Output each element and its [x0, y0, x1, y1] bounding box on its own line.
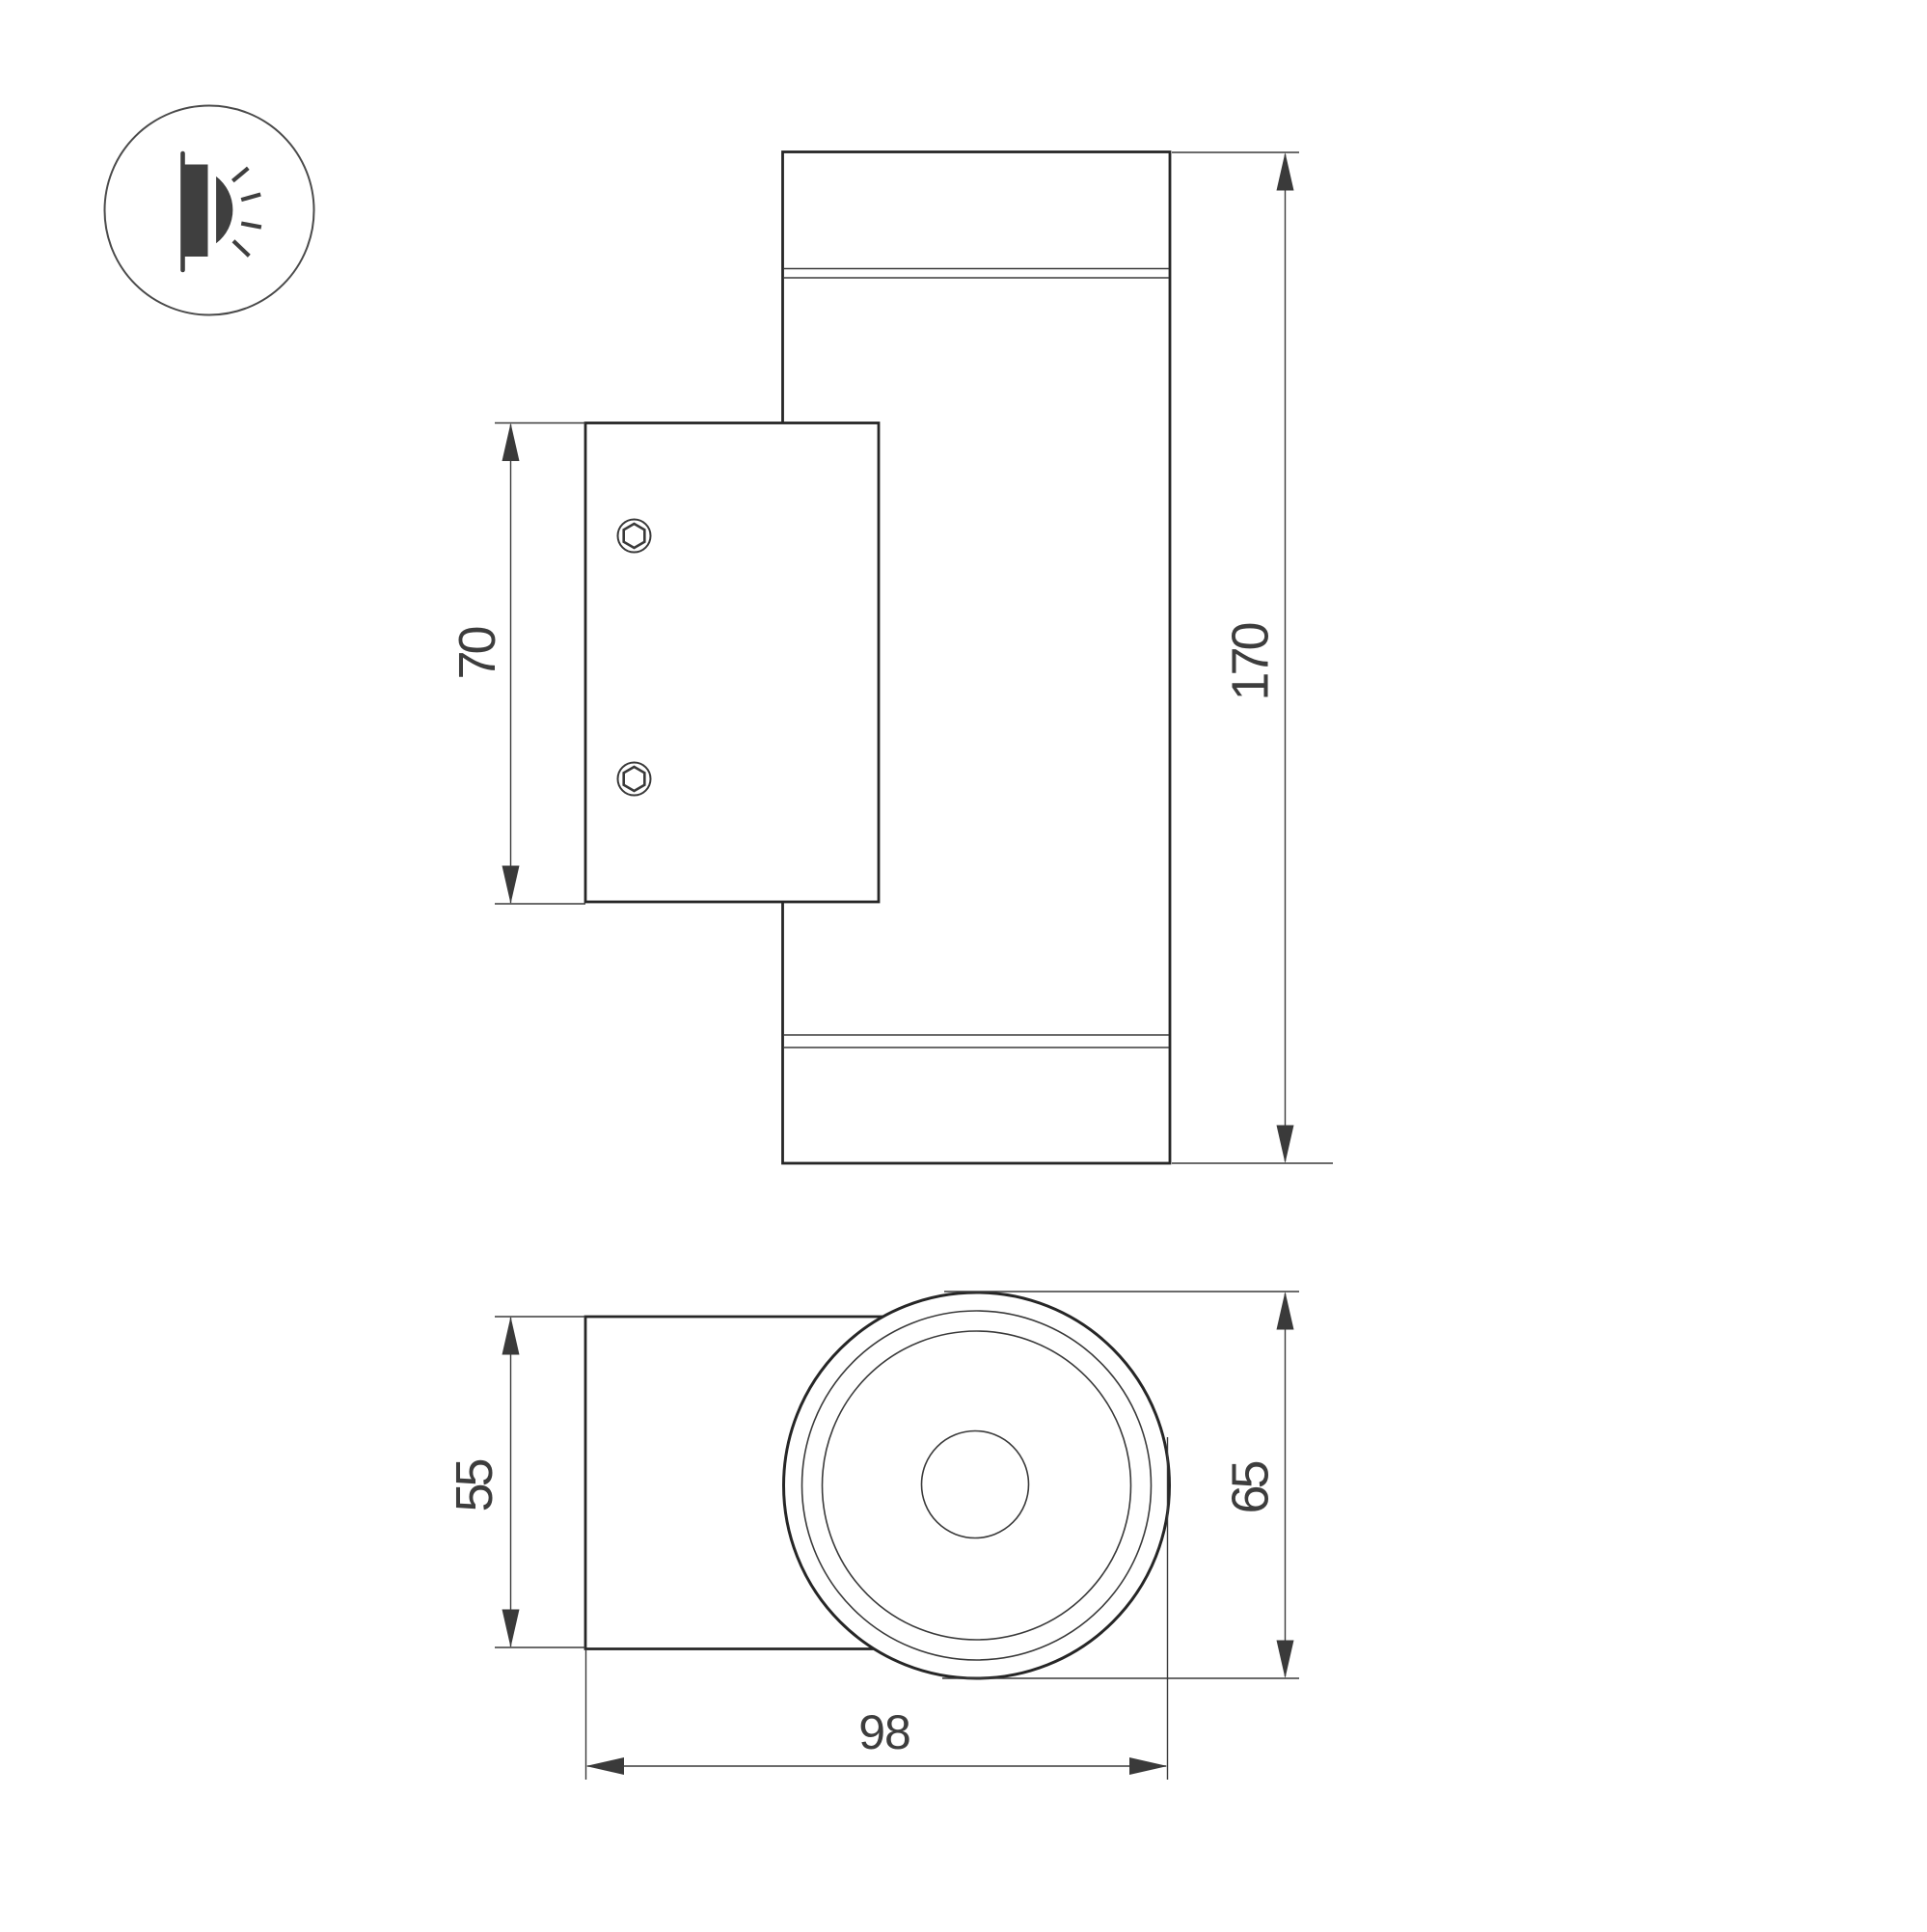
svg-text:170: 170	[1222, 623, 1280, 700]
svg-text:55: 55	[446, 1460, 503, 1512]
svg-text:70: 70	[448, 628, 506, 680]
svg-text:65: 65	[1222, 1462, 1280, 1514]
svg-text:98: 98	[858, 1705, 910, 1759]
